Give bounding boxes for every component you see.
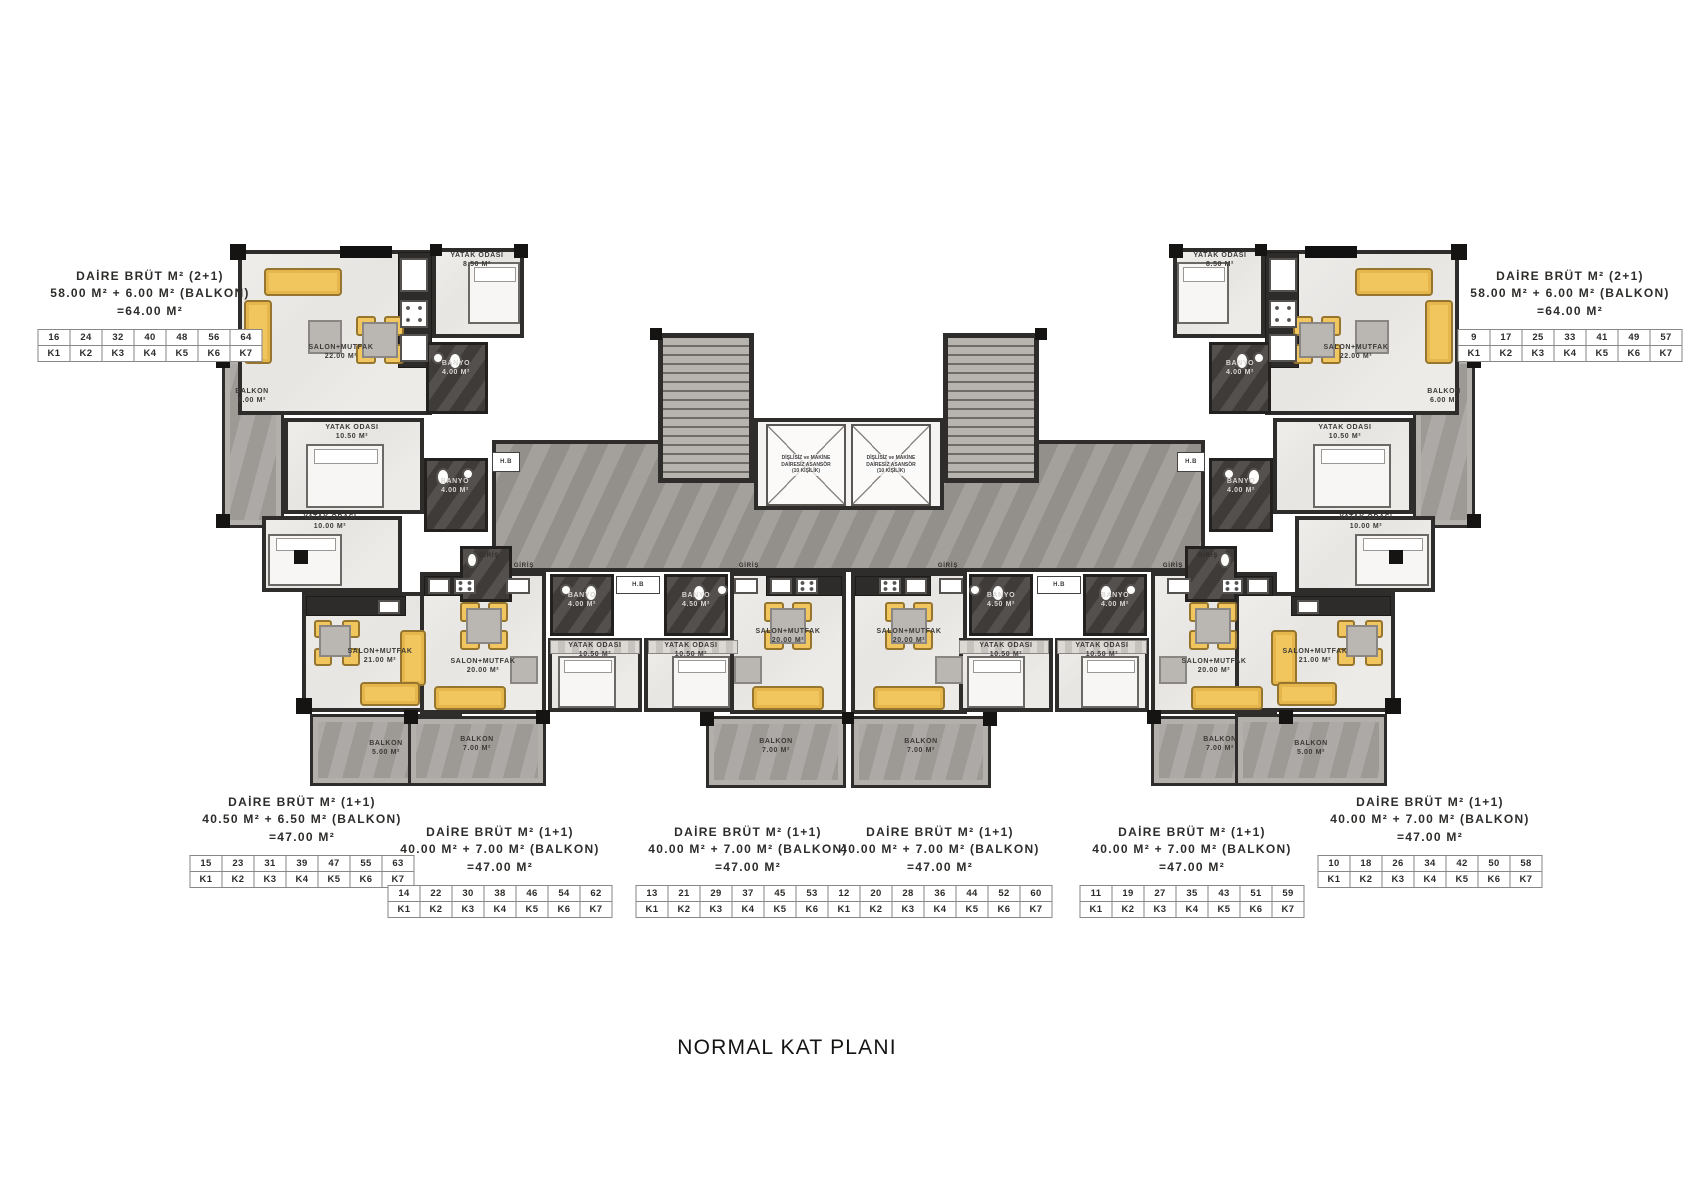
- floor-code-cell: K6: [1240, 902, 1272, 918]
- room-label: BALKON6.00 M²: [1427, 387, 1461, 405]
- floor-code-cell: K2: [222, 872, 254, 888]
- unit-number-cell: 56: [198, 330, 230, 346]
- elevator: DİŞLİSİZ ve MAKİNEDAİRESİZ ASANSÖR(10 Kİ…: [766, 424, 846, 506]
- toilet: [1219, 552, 1231, 568]
- dining-table: [319, 625, 351, 657]
- room-label: BANYO4.00 M²: [1101, 591, 1129, 609]
- column: [1255, 244, 1267, 256]
- floor-code-cell: K5: [318, 872, 350, 888]
- unit-info-line: =47.00 M²: [828, 859, 1053, 876]
- unit-number-cell: 18: [1350, 856, 1382, 872]
- unit-info-line: DAİRE BRÜT M² (1+1): [190, 794, 415, 811]
- unit-info-line: =47.00 M²: [1080, 859, 1305, 876]
- stove: [454, 578, 476, 594]
- column: [430, 244, 442, 256]
- unit-number-cell: 64: [230, 330, 262, 346]
- column: [1451, 244, 1467, 260]
- unit-number-cell: 49: [1618, 330, 1650, 346]
- unit-number-cell: 16: [38, 330, 70, 346]
- shaft-hb: H.B: [616, 576, 660, 594]
- column: [983, 712, 997, 726]
- floor-code-cell: K1: [38, 346, 70, 362]
- floor-code-cell: K3: [1144, 902, 1176, 918]
- entry-label: GİRİŞ: [479, 553, 499, 559]
- column: [536, 710, 550, 724]
- floor-code-cell: K5: [1208, 902, 1240, 918]
- floor-code-cell: K6: [1478, 872, 1510, 888]
- unit-info-line: DAİRE BRÜT M² (1+1): [1080, 824, 1305, 841]
- room-label: YATAK ODASI10.50 M²: [325, 423, 378, 441]
- unit-info-line: =47.00 M²: [388, 859, 613, 876]
- room-label: BALKON7.00 M²: [904, 737, 938, 755]
- unit-info-line: DAİRE BRÜT M² (1+1): [388, 824, 613, 841]
- counter: [734, 578, 758, 594]
- stairwell: [943, 333, 1039, 483]
- sofa: [1355, 268, 1433, 296]
- floor-code-cell: K4: [732, 902, 764, 918]
- unit-number-cell: 44: [956, 886, 988, 902]
- unit-number-table: 11192735435159K1K2K3K4K5K6K7: [1080, 885, 1305, 918]
- floor-code-cell: K3: [700, 902, 732, 918]
- floor-code-cell: K7: [1020, 902, 1052, 918]
- floor-code-cell: K1: [636, 902, 668, 918]
- floor-code-cell: K5: [764, 902, 796, 918]
- column: [404, 710, 418, 724]
- stove: [1269, 300, 1297, 328]
- toilet: [466, 552, 478, 568]
- unit-info-line: DAİRE BRÜT M² (2+1): [38, 268, 263, 285]
- floor-code-cell: K1: [828, 902, 860, 918]
- bed: [1177, 262, 1229, 324]
- bed: [306, 444, 384, 508]
- bed: [558, 656, 616, 708]
- unit-number-cell: 29: [700, 886, 732, 902]
- entry-label: GİRİŞ: [938, 563, 958, 569]
- unit-info-line: DAİRE BRÜT M² (1+1): [1318, 794, 1543, 811]
- dining-table: [466, 608, 502, 644]
- unit-info-line: 58.00 M² + 6.00 M² (BALKON): [38, 285, 263, 302]
- column: [1389, 550, 1403, 564]
- unit-number-cell: 50: [1478, 856, 1510, 872]
- floor-code-cell: K6: [548, 902, 580, 918]
- floor-code-cell: K4: [1176, 902, 1208, 918]
- floor-code-cell: K4: [484, 902, 516, 918]
- floor-code-cell: K2: [420, 902, 452, 918]
- floor-code-cell: K3: [102, 346, 134, 362]
- unit-number-cell: 20: [860, 886, 892, 902]
- unit-number-cell: 59: [1272, 886, 1304, 902]
- room-label: SALON+MUTFAK21.00 M²: [1283, 647, 1348, 665]
- side-table: [734, 656, 762, 684]
- column: [1169, 244, 1183, 258]
- floor-code-cell: K4: [286, 872, 318, 888]
- unit-number-cell: 17: [1490, 330, 1522, 346]
- room-label: SALON+MUTFAK20.00 M²: [451, 657, 516, 675]
- dining-table: [1195, 608, 1231, 644]
- unit-info-block-bottom-left-mid: DAİRE BRÜT M² (1+1)40.00 M² + 7.00 M² (B…: [388, 824, 613, 918]
- floor-code-cell: K1: [190, 872, 222, 888]
- unit-number-cell: 31: [254, 856, 286, 872]
- floor-code-cell: K2: [860, 902, 892, 918]
- floor-code-cell: K7: [1650, 346, 1682, 362]
- floor-code-cell: K5: [516, 902, 548, 918]
- room-label: BALKON6.00 M²: [235, 387, 269, 405]
- unit-number-cell: 11: [1080, 886, 1112, 902]
- sofa: [1191, 686, 1263, 710]
- unit-number-table: 14223038465462K1K2K3K4K5K6K7: [388, 885, 613, 918]
- sofa: [752, 686, 824, 710]
- floor-code-cell: K3: [254, 872, 286, 888]
- counter: [1167, 578, 1191, 594]
- basin: [1253, 352, 1265, 364]
- room-label: YATAK ODASI10.50 M²: [568, 641, 621, 659]
- unit-info-line: =64.00 M²: [1458, 303, 1683, 320]
- bed: [967, 656, 1025, 708]
- room-label: SALON+MUTFAK21.00 M²: [348, 647, 413, 665]
- floor-code-cell: K7: [580, 902, 612, 918]
- tv-unit: [340, 246, 392, 258]
- column: [1147, 710, 1161, 724]
- floor-code-cell: K1: [1080, 902, 1112, 918]
- room-label: BANYO4.00 M²: [1227, 477, 1255, 495]
- room-label: BANYO4.00 M²: [568, 591, 596, 609]
- kitchen-sink: [1269, 258, 1297, 292]
- floor-code-cell: K7: [1510, 872, 1542, 888]
- unit-number-cell: 57: [1650, 330, 1682, 346]
- room-label: BALKON7.00 M²: [460, 735, 494, 753]
- unit-number-cell: 22: [420, 886, 452, 902]
- column: [1279, 710, 1293, 724]
- floor-code-cell: K5: [1586, 346, 1618, 362]
- kitchen-sink: [378, 600, 400, 614]
- unit-number-cell: 24: [70, 330, 102, 346]
- column: [1385, 698, 1401, 714]
- sofa: [360, 682, 420, 706]
- room-label: YATAK ODASI8.50 M²: [1193, 251, 1246, 269]
- unit-number-cell: 30: [452, 886, 484, 902]
- room-label: BALKON7.00 M²: [1203, 735, 1237, 753]
- unit-info-line: 40.00 M² + 7.00 M² (BALKON): [828, 841, 1053, 858]
- column: [294, 550, 308, 564]
- column: [650, 328, 662, 340]
- floor-code-cell: K5: [166, 346, 198, 362]
- floor-code-cell: K1: [1458, 346, 1490, 362]
- floor-code-cell: K2: [1112, 902, 1144, 918]
- unit-number-cell: 27: [1144, 886, 1176, 902]
- bed: [672, 656, 730, 708]
- unit-info-block-top-right: DAİRE BRÜT M² (2+1)58.00 M² + 6.00 M² (B…: [1458, 268, 1683, 362]
- sofa: [264, 268, 342, 296]
- shaft-hb: H.B: [1177, 452, 1205, 472]
- kitchen-sink: [428, 578, 450, 594]
- room-label: YATAK ODASI10.50 M²: [1075, 641, 1128, 659]
- sofa: [1277, 682, 1337, 706]
- unit-number-cell: 60: [1020, 886, 1052, 902]
- room-label: BANYO4.50 M²: [682, 591, 710, 609]
- unit-info-line: =47.00 M²: [1318, 829, 1543, 846]
- room-label: YATAK ODASI10.50 M²: [979, 641, 1032, 659]
- unit-info-line: 40.50 M² + 6.50 M² (BALKON): [190, 811, 415, 828]
- unit-number-cell: 45: [764, 886, 796, 902]
- unit-number-cell: 39: [286, 856, 318, 872]
- unit-number-cell: 19: [1112, 886, 1144, 902]
- unit-number-cell: 54: [548, 886, 580, 902]
- floor-code-cell: K2: [668, 902, 700, 918]
- floor-code-cell: K6: [350, 872, 382, 888]
- unit-number-table: 15233139475563K1K2K3K4K5K6K7: [190, 855, 415, 888]
- unit-number-cell: 40: [134, 330, 166, 346]
- unit-number-cell: 14: [388, 886, 420, 902]
- unit-info-block-bottom-right-mid: DAİRE BRÜT M² (1+1)40.00 M² + 7.00 M² (B…: [1080, 824, 1305, 918]
- basin: [716, 584, 728, 596]
- unit-number-cell: 48: [166, 330, 198, 346]
- shaft-hb: H.B: [492, 452, 520, 472]
- unit-info-line: 40.00 M² + 7.00 M² (BALKON): [1080, 841, 1305, 858]
- room-label: BALKON7.00 M²: [759, 737, 793, 755]
- room-label: YATAK ODASI10.50 M²: [1318, 423, 1371, 441]
- column: [1035, 328, 1047, 340]
- unit-number-cell: 38: [484, 886, 516, 902]
- stove: [796, 578, 818, 594]
- floor-code-cell: K6: [796, 902, 828, 918]
- sofa: [873, 686, 945, 710]
- elevator-label: DİŞLİSİZ ve MAKİNEDAİRESİZ ASANSÖR(10 Kİ…: [865, 454, 917, 476]
- room-label: BALKON5.00 M²: [1294, 739, 1328, 757]
- floor-code-cell: K6: [198, 346, 230, 362]
- floor-code-cell: K6: [1618, 346, 1650, 362]
- bed: [468, 262, 520, 324]
- unit-number-cell: 47: [318, 856, 350, 872]
- shaft-hb: H.B: [1037, 576, 1081, 594]
- dining-table: [1346, 625, 1378, 657]
- kitchen-sink: [1247, 578, 1269, 594]
- sofa: [434, 686, 506, 710]
- room-label: BALKON5.00 M²: [369, 739, 403, 757]
- unit-number-cell: 10: [1318, 856, 1350, 872]
- counter: [506, 578, 530, 594]
- kitchen-sink: [905, 578, 927, 594]
- unit-number-table: 16243240485664K1K2K3K4K5K6K7: [38, 329, 263, 362]
- floor-code-cell: K4: [1414, 872, 1446, 888]
- side-table: [935, 656, 963, 684]
- unit-number-table: 10182634425058K1K2K3K4K5K6K7: [1318, 855, 1543, 888]
- floor-code-cell: K7: [1272, 902, 1304, 918]
- unit-number-cell: 51: [1240, 886, 1272, 902]
- unit-info-block-top-left: DAİRE BRÜT M² (2+1)58.00 M² + 6.00 M² (B…: [38, 268, 263, 362]
- stove: [879, 578, 901, 594]
- unit-info-block-bottom-center-right: DAİRE BRÜT M² (1+1)40.00 M² + 7.00 M² (B…: [828, 824, 1053, 918]
- unit-number-cell: 15: [190, 856, 222, 872]
- kitchen-sink: [770, 578, 792, 594]
- floor-code-cell: K4: [134, 346, 166, 362]
- room-label: BANYO4.00 M²: [1226, 359, 1254, 377]
- stove: [400, 300, 428, 328]
- unit-info-line: DAİRE BRÜT M² (1+1): [828, 824, 1053, 841]
- floor-code-cell: K3: [1382, 872, 1414, 888]
- elevator: DİŞLİSİZ ve MAKİNEDAİRESİZ ASANSÖR(10 Kİ…: [851, 424, 931, 506]
- floor-code-cell: K3: [892, 902, 924, 918]
- unit-info-line: =47.00 M²: [190, 829, 415, 846]
- counter: [400, 334, 428, 362]
- unit-number-cell: 21: [668, 886, 700, 902]
- unit-number-cell: 43: [1208, 886, 1240, 902]
- column: [700, 712, 714, 726]
- entry-label: GİRİŞ: [739, 563, 759, 569]
- entry-label: GİRİŞ: [1163, 563, 1183, 569]
- unit-info-line: 58.00 M² + 6.00 M² (BALKON): [1458, 285, 1683, 302]
- unit-info-line: DAİRE BRÜT M² (2+1): [1458, 268, 1683, 285]
- counter: [939, 578, 963, 594]
- room-label: BANYO4.00 M²: [442, 359, 470, 377]
- unit-number-table: 9172533414957K1K2K3K4K5K6K7: [1458, 329, 1683, 362]
- floor-code-cell: K1: [388, 902, 420, 918]
- unit-number-cell: 32: [102, 330, 134, 346]
- floor-code-cell: K5: [956, 902, 988, 918]
- unit-number-cell: 58: [1510, 856, 1542, 872]
- unit-number-cell: 33: [1554, 330, 1586, 346]
- kitchen-sink: [400, 258, 428, 292]
- bed: [1313, 444, 1391, 508]
- counter: [1269, 334, 1297, 362]
- unit-info-block-bottom-far-right: DAİRE BRÜT M² (1+1)40.00 M² + 7.00 M² (B…: [1318, 794, 1543, 888]
- room-label: SALON+MUTFAK20.00 M²: [756, 627, 821, 645]
- room-label: YATAK ODASI10.00 M²: [303, 513, 356, 531]
- unit-number-cell: 46: [516, 886, 548, 902]
- stairwell: [658, 333, 754, 483]
- unit-info-block-bottom-far-left: DAİRE BRÜT M² (1+1)40.50 M² + 6.50 M² (B…: [190, 794, 415, 888]
- unit-number-cell: 9: [1458, 330, 1490, 346]
- floor-code-cell: K4: [1554, 346, 1586, 362]
- unit-info-line: 40.00 M² + 7.00 M² (BALKON): [1318, 811, 1543, 828]
- unit-number-cell: 41: [1586, 330, 1618, 346]
- column: [216, 514, 230, 528]
- kitchen-sink: [1297, 600, 1319, 614]
- room-label: YATAK ODASI10.00 M²: [1339, 513, 1392, 531]
- unit-number-cell: 23: [222, 856, 254, 872]
- plan-title: NORMAL KAT PLANI: [677, 1036, 897, 1060]
- room-label: YATAK ODASI8.50 M²: [450, 251, 503, 269]
- room-label: SALON+MUTFAK22.00 M²: [309, 343, 374, 361]
- floor-code-cell: K5: [1446, 872, 1478, 888]
- unit-number-cell: 52: [988, 886, 1020, 902]
- elevator-label: DİŞLİSİZ ve MAKİNEDAİRESİZ ASANSÖR(10 Kİ…: [780, 454, 832, 476]
- unit-number-cell: 55: [350, 856, 382, 872]
- column: [1467, 514, 1481, 528]
- room-label: YATAK ODASI10.50 M²: [664, 641, 717, 659]
- column: [514, 244, 528, 258]
- unit-number-cell: 53: [796, 886, 828, 902]
- floor-plan-page: DİŞLİSİZ ve MAKİNEDAİRESİZ ASANSÖR(10 Kİ…: [0, 0, 1697, 1200]
- unit-number-cell: 62: [580, 886, 612, 902]
- column: [296, 698, 312, 714]
- unit-number-cell: 26: [1382, 856, 1414, 872]
- unit-number-table: 12202836445260K1K2K3K4K5K6K7: [828, 885, 1053, 918]
- unit-number-cell: 13: [636, 886, 668, 902]
- bed: [1081, 656, 1139, 708]
- room-label: SALON+MUTFAK22.00 M²: [1324, 343, 1389, 361]
- unit-info-line: 40.00 M² + 7.00 M² (BALKON): [388, 841, 613, 858]
- room-label: BANYO4.00 M²: [441, 477, 469, 495]
- stove: [1221, 578, 1243, 594]
- room-label: SALON+MUTFAK20.00 M²: [877, 627, 942, 645]
- unit-number-cell: 37: [732, 886, 764, 902]
- room-label: BANYO4.50 M²: [987, 591, 1015, 609]
- tv-unit: [1305, 246, 1357, 258]
- floor-code-cell: K1: [1318, 872, 1350, 888]
- floor-code-cell: K3: [1522, 346, 1554, 362]
- unit-number-cell: 34: [1414, 856, 1446, 872]
- column: [230, 244, 246, 260]
- unit-number-cell: 36: [924, 886, 956, 902]
- unit-number-cell: 35: [1176, 886, 1208, 902]
- entry-label: GİRİŞ: [514, 563, 534, 569]
- unit-number-cell: 28: [892, 886, 924, 902]
- unit-number-cell: 12: [828, 886, 860, 902]
- room-label: SALON+MUTFAK20.00 M²: [1182, 657, 1247, 675]
- floor-code-cell: K3: [452, 902, 484, 918]
- floor-code-cell: K7: [230, 346, 262, 362]
- floor-code-cell: K2: [1350, 872, 1382, 888]
- floor-code-cell: K4: [924, 902, 956, 918]
- basin: [969, 584, 981, 596]
- unit-number-cell: 25: [1522, 330, 1554, 346]
- unit-number-cell: 42: [1446, 856, 1478, 872]
- floor-code-cell: K6: [988, 902, 1020, 918]
- unit-info-line: =64.00 M²: [38, 303, 263, 320]
- floor-code-cell: K2: [1490, 346, 1522, 362]
- column: [842, 712, 854, 724]
- sofa: [1425, 300, 1453, 364]
- floor-code-cell: K2: [70, 346, 102, 362]
- entry-label: GİRİŞ: [1198, 553, 1218, 559]
